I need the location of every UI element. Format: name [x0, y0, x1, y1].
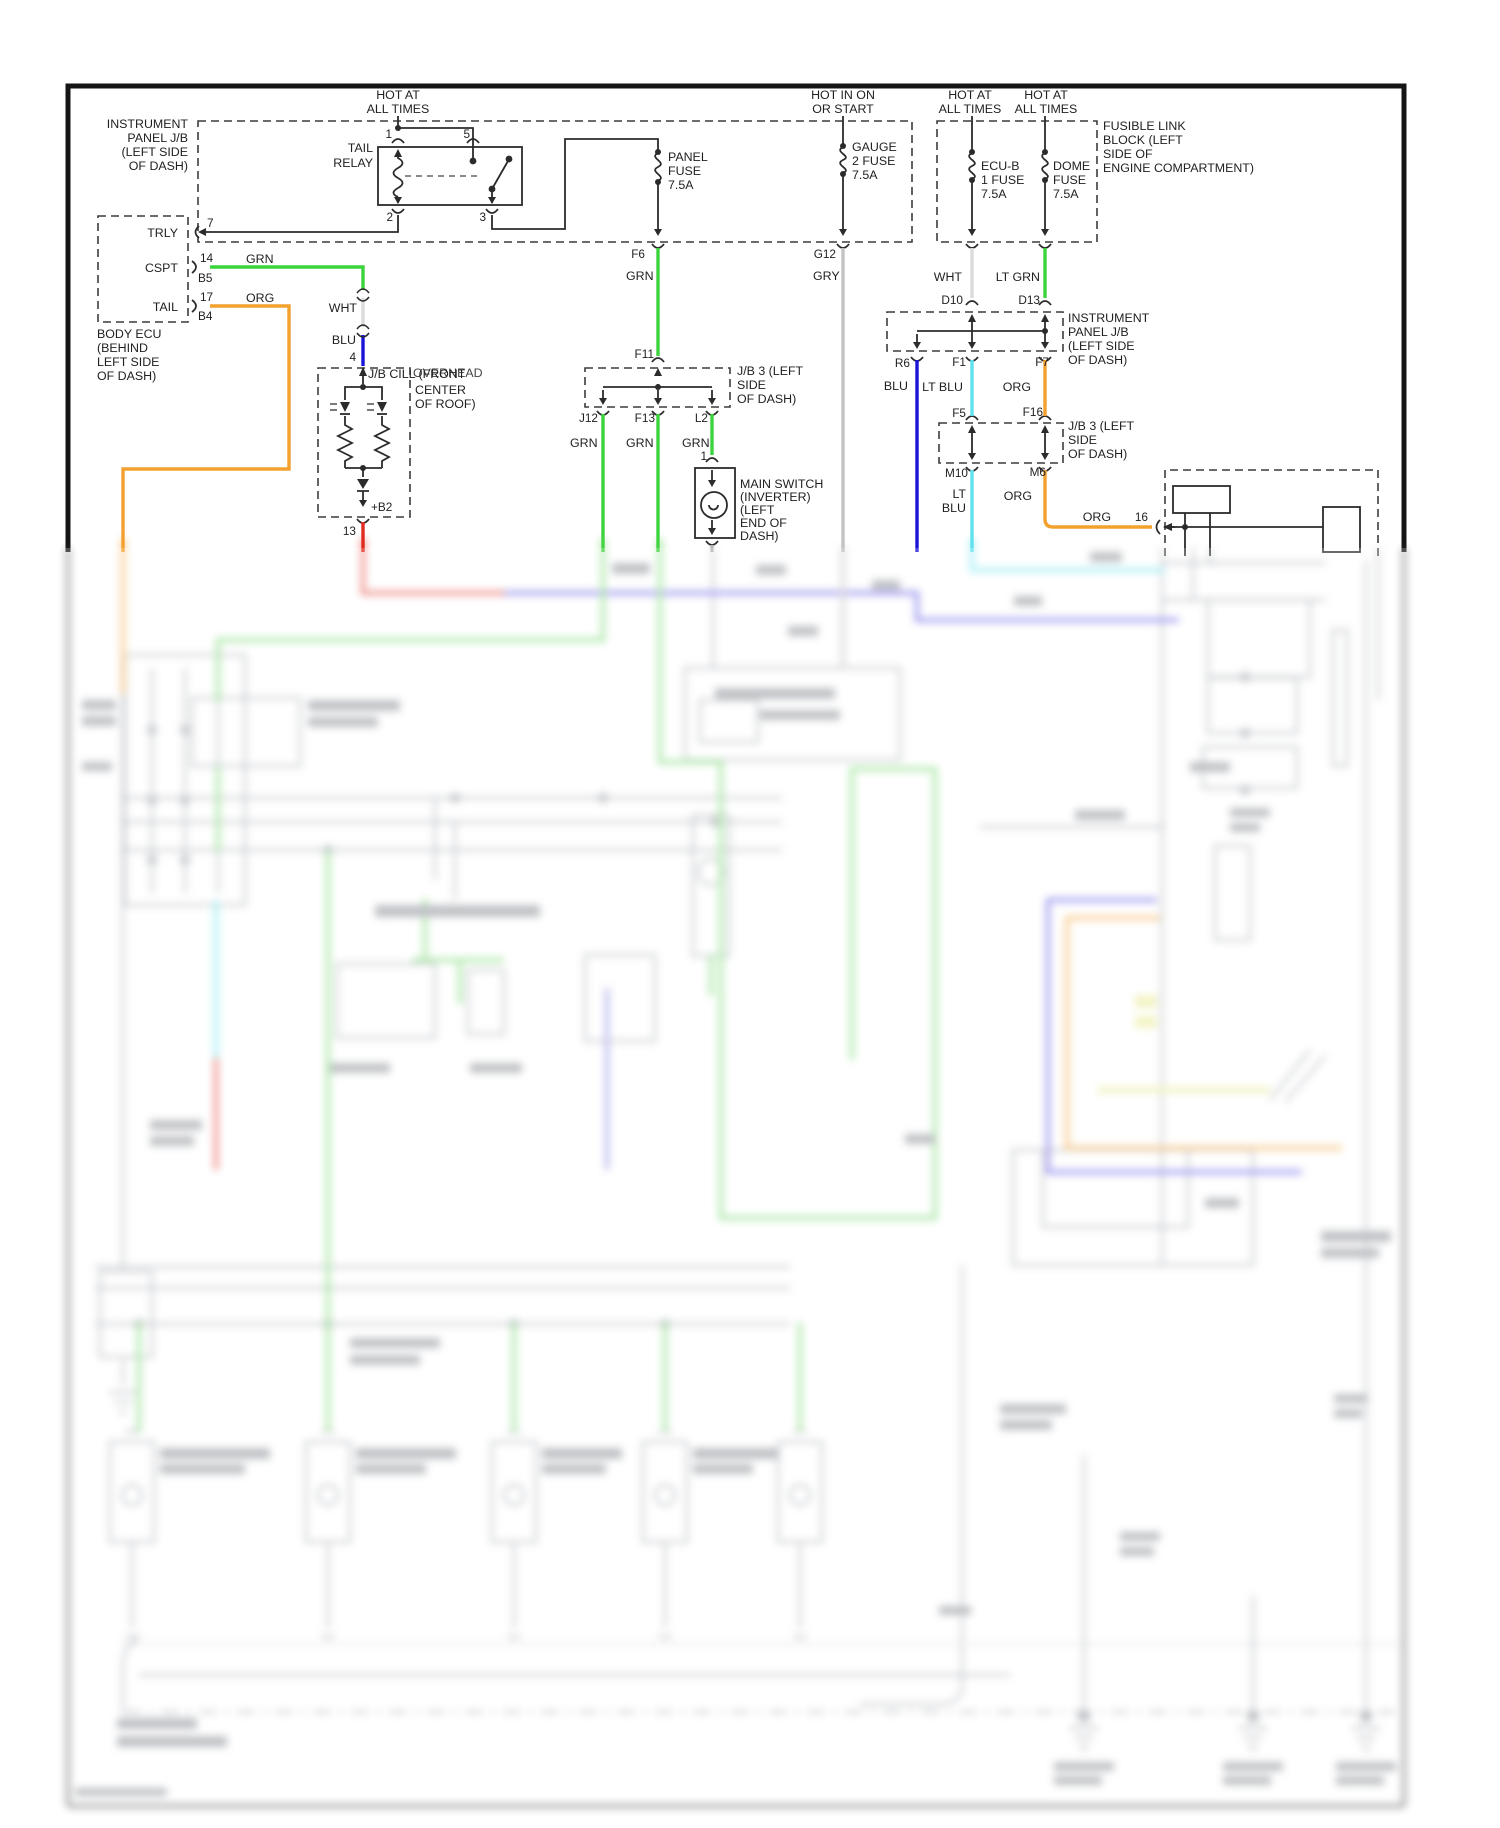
label-jb3-m-2: SIDE: [737, 378, 766, 392]
text-labels: HOT AT ALL TIMES HOT IN ON OR START HOT …: [97, 88, 1254, 543]
label-wht-cill: WHT: [329, 301, 358, 315]
pin-d10: D10: [941, 293, 963, 307]
label-panel-fuse-2: FUSE: [668, 164, 701, 178]
pin-f13: F13: [635, 411, 656, 425]
pin-7: 7: [207, 216, 214, 230]
pin-m6: M6: [1030, 465, 1047, 479]
label-jb3-m-1: J/B 3 (LEFT: [737, 364, 804, 378]
label-hot-in-on: HOT IN ON: [811, 88, 875, 102]
label-blu-r6: BLU: [884, 379, 908, 393]
label-main-switch-4: END OF: [740, 516, 787, 530]
label-hot-at-2: HOT AT: [948, 88, 992, 102]
label-org-tail: ORG: [246, 291, 274, 305]
label-fusible-1: FUSIBLE LINK: [1103, 119, 1186, 133]
label-org-16: ORG: [1083, 510, 1111, 524]
label-ipjb-1: INSTRUMENT: [107, 117, 189, 131]
gauge-fuse-element: [840, 147, 846, 173]
label-main-switch-3: (LEFT: [740, 503, 775, 517]
label-jb3-r-3: OF DASH): [1068, 447, 1127, 461]
label-org-f7: ORG: [1003, 380, 1031, 394]
tail-relay-symbol: [378, 116, 522, 213]
dome-fuse-element: [1042, 153, 1048, 179]
label-main-switch-1: MAIN SWITCH: [740, 477, 823, 491]
label-grn-l2: GRN: [682, 436, 710, 450]
pin-f16: F16: [1023, 405, 1044, 419]
blur-veil: [0, 548, 1500, 1828]
pin-16: 16: [1135, 510, 1149, 524]
label-lt-m10: LT: [952, 487, 966, 501]
label-fusible-3: SIDE OF: [1103, 147, 1153, 161]
pin-13: 13: [343, 524, 357, 538]
label-ltblu-f1: LT BLU: [922, 380, 963, 394]
label-fusible-2: BLOCK (LEFT: [1103, 133, 1183, 147]
label-org-m6: ORG: [1004, 489, 1032, 503]
label-grn-j12: GRN: [570, 436, 598, 450]
label-ecub-fuse-2: 1 FUSE: [981, 173, 1024, 187]
label-body-ecu-1: BODY ECU: [97, 327, 162, 341]
pin-cspt-arc: [192, 261, 196, 273]
label-ltgrn-d13: LT GRN: [996, 270, 1040, 284]
label-wht-d10: WHT: [934, 270, 963, 284]
pin-b2: +B2: [371, 500, 392, 514]
label-jb-cill-2: CENTER: [415, 383, 466, 397]
wire-relay-to-panel-fuse: [492, 139, 658, 229]
pin-17: 17: [200, 290, 213, 304]
label-jb-cill-overlay: OVERHEAD: [413, 366, 483, 380]
pin-f5: F5: [952, 406, 966, 420]
label-panel-fuse-1: PANEL: [668, 150, 708, 164]
label-blu-m10: BLU: [942, 501, 966, 515]
box-jb-cill: [318, 368, 410, 517]
pin-b5: B5: [198, 271, 213, 285]
pin-14: 14: [200, 251, 214, 265]
label-dome-fuse-2: FUSE: [1053, 173, 1086, 187]
pin-m10: M10: [945, 466, 968, 480]
pin-f1: F1: [952, 355, 966, 369]
pin-5: 5: [463, 127, 470, 141]
label-panel-fuse-3: 7.5A: [668, 178, 694, 192]
label-jb3-r-2: SIDE: [1068, 433, 1097, 447]
pin-3: 3: [479, 210, 486, 224]
label-all-times-1: ALL TIMES: [367, 102, 430, 116]
pin-4: 4: [349, 350, 356, 364]
box-instrument-panel-jb: [198, 121, 912, 242]
panel-fuse-element: [655, 153, 661, 181]
label-gauge-fuse-3: 7.5A: [852, 168, 878, 182]
label-ipjb-r-3: (LEFT SIDE: [1068, 339, 1135, 353]
label-grn-f6: GRN: [626, 269, 654, 283]
label-tail-relay-2: RELAY: [333, 156, 373, 170]
pin-f6: F6: [631, 247, 645, 261]
label-ipjb-4: OF DASH): [129, 159, 188, 173]
label-jb3-r-1: J/B 3 (LEFT: [1068, 419, 1135, 433]
label-jb-cill-3: OF ROOF): [415, 397, 476, 411]
label-gauge-fuse-2: 2 FUSE: [852, 154, 895, 168]
label-all-times-3: ALL TIMES: [1015, 102, 1078, 116]
label-ecub-fuse-1: ECU-B: [981, 159, 1020, 173]
label-tail-relay-1: TAIL: [348, 141, 373, 155]
label-ipjb-r-1: INSTRUMENT: [1068, 311, 1150, 325]
label-cspt: CSPT: [145, 261, 178, 275]
far-right-rect2: [1323, 507, 1360, 552]
wiring-diagram-svg: HOT AT ALL TIMES HOT IN ON OR START HOT …: [0, 0, 1500, 1828]
wire-grn-cspt: [210, 267, 363, 290]
far-right-rect1: [1173, 486, 1230, 513]
label-body-ecu-2: (BEHIND: [97, 341, 148, 355]
label-grn-f13: GRN: [626, 436, 654, 450]
pin-g12: G12: [814, 247, 836, 261]
label-fusible-4: ENGINE COMPARTMENT): [1103, 161, 1254, 175]
pin-2: 2: [386, 210, 393, 224]
label-main-switch-5: DASH): [740, 529, 779, 543]
label-ipjb-3: (LEFT SIDE: [121, 145, 188, 159]
pin-b4: B4: [198, 309, 213, 323]
wire-trly: [206, 215, 398, 232]
ecub-fuse-element: [969, 153, 975, 179]
page-border-top: [68, 86, 1404, 552]
label-gry-g12: GRY: [813, 269, 840, 283]
pin-f11: F11: [635, 347, 654, 361]
pin-f7: F7: [1035, 355, 1049, 369]
label-tail: TAIL: [153, 300, 178, 314]
label-main-switch-2: (INVERTER): [740, 490, 811, 504]
label-body-ecu-3: LEFT SIDE: [97, 355, 159, 369]
label-blu-cill: BLU: [332, 333, 356, 347]
pin-j12: J12: [579, 411, 598, 425]
label-dome-fuse-3: 7.5A: [1053, 187, 1079, 201]
pin-l2: L2: [695, 411, 708, 425]
pin-d13: D13: [1018, 293, 1040, 307]
pin-16-arc: [1157, 520, 1161, 534]
pin-r6: R6: [895, 356, 911, 370]
label-or-start: OR START: [812, 102, 874, 116]
pin-tail-arc: [192, 300, 196, 312]
pin-1: 1: [385, 127, 392, 141]
wiring-diagram-page: HOT AT ALL TIMES HOT IN ON OR START HOT …: [0, 0, 1500, 1828]
pin-sw1: 1: [700, 449, 707, 463]
label-dome-fuse-1: DOME: [1053, 159, 1090, 173]
label-ipjb-2: PANEL J/B: [127, 131, 188, 145]
label-hot-at-3: HOT AT: [1024, 88, 1068, 102]
label-trly: TRLY: [147, 226, 178, 240]
label-all-times-2: ALL TIMES: [939, 102, 1002, 116]
label-grn-cspt: GRN: [246, 252, 274, 266]
label-hot-at-1: HOT AT: [376, 88, 420, 102]
label-ipjb-r-2: PANEL J/B: [1068, 325, 1129, 339]
colored-wires: [123, 248, 1152, 552]
label-jb3-m-3: OF DASH): [737, 392, 796, 406]
label-ecub-fuse-3: 7.5A: [981, 187, 1007, 201]
label-ipjb-r-4: OF DASH): [1068, 353, 1127, 367]
label-gauge-fuse-1: GAUGE: [852, 140, 897, 154]
label-body-ecu-4: OF DASH): [97, 369, 156, 383]
